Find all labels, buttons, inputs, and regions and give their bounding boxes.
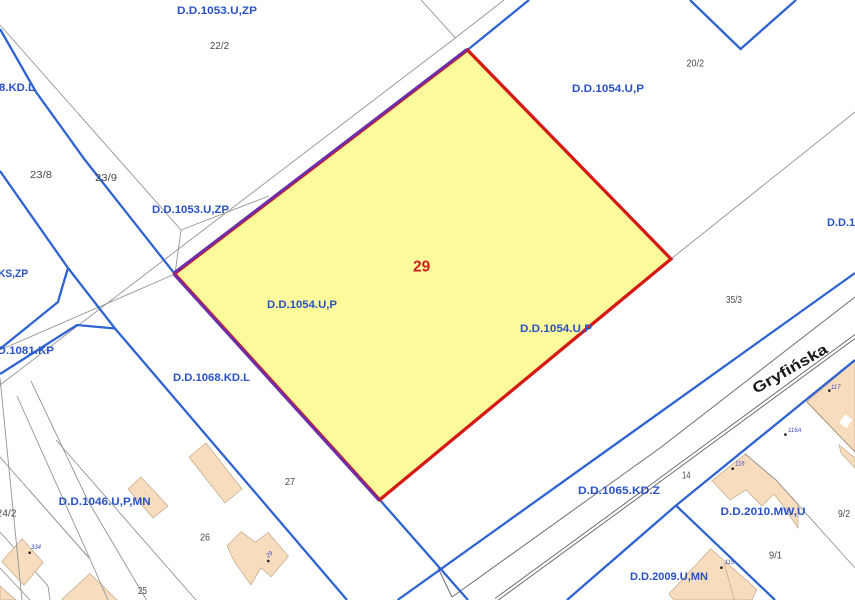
svg-text:D.D.1068.KD.L: D.D.1068.KD.L bbox=[173, 372, 250, 384]
svg-text:D.D.1053.U,ZP: D.D.1053.U,ZP bbox=[152, 204, 229, 216]
svg-text:26: 26 bbox=[200, 533, 210, 544]
svg-text:35/3: 35/3 bbox=[726, 295, 742, 306]
svg-text:D.D.2010.MW,U: D.D.2010.MW,U bbox=[721, 506, 806, 518]
svg-text:D.D.1065.KD.Z: D.D.1065.KD.Z bbox=[578, 485, 660, 497]
svg-text:D.D.1054.U,P: D.D.1054.U,P bbox=[520, 323, 592, 335]
svg-text:27: 27 bbox=[285, 477, 295, 488]
svg-text:116A: 116A bbox=[788, 428, 802, 434]
svg-text:D.D.10: D.D.10 bbox=[827, 217, 855, 229]
svg-text:D.D.2009.U,MN: D.D.2009.U,MN bbox=[630, 571, 708, 583]
svg-text:D.D.1054.U,P: D.D.1054.U,P bbox=[572, 83, 644, 95]
svg-text:9/1: 9/1 bbox=[769, 551, 782, 562]
svg-text:D.D.1054.U,P: D.D.1054.U,P bbox=[267, 299, 337, 311]
svg-text:D.D.1081.KP: D.D.1081.KP bbox=[0, 345, 54, 357]
svg-text:24/2: 24/2 bbox=[0, 509, 17, 520]
svg-text:20/2: 20/2 bbox=[687, 59, 705, 70]
svg-text:334: 334 bbox=[31, 545, 42, 551]
svg-text:14: 14 bbox=[682, 471, 691, 482]
svg-text:9/2: 9/2 bbox=[838, 509, 850, 520]
svg-text:117: 117 bbox=[831, 385, 841, 391]
svg-text:8.KD.L: 8.KD.L bbox=[0, 82, 35, 94]
svg-text:29: 29 bbox=[413, 259, 431, 276]
svg-text:D.D.1046.U,P,MN: D.D.1046.U,P,MN bbox=[59, 496, 151, 508]
svg-text:23/8: 23/8 bbox=[30, 170, 52, 181]
svg-text:22/2: 22/2 bbox=[210, 41, 229, 52]
svg-text:116: 116 bbox=[735, 462, 745, 468]
svg-text:KS,ZP: KS,ZP bbox=[0, 268, 28, 280]
svg-text:25: 25 bbox=[138, 586, 147, 597]
svg-text:115: 115 bbox=[725, 560, 735, 566]
svg-text:D.D.1053.U,ZP: D.D.1053.U,ZP bbox=[177, 5, 257, 17]
svg-text:23/9: 23/9 bbox=[95, 173, 117, 184]
